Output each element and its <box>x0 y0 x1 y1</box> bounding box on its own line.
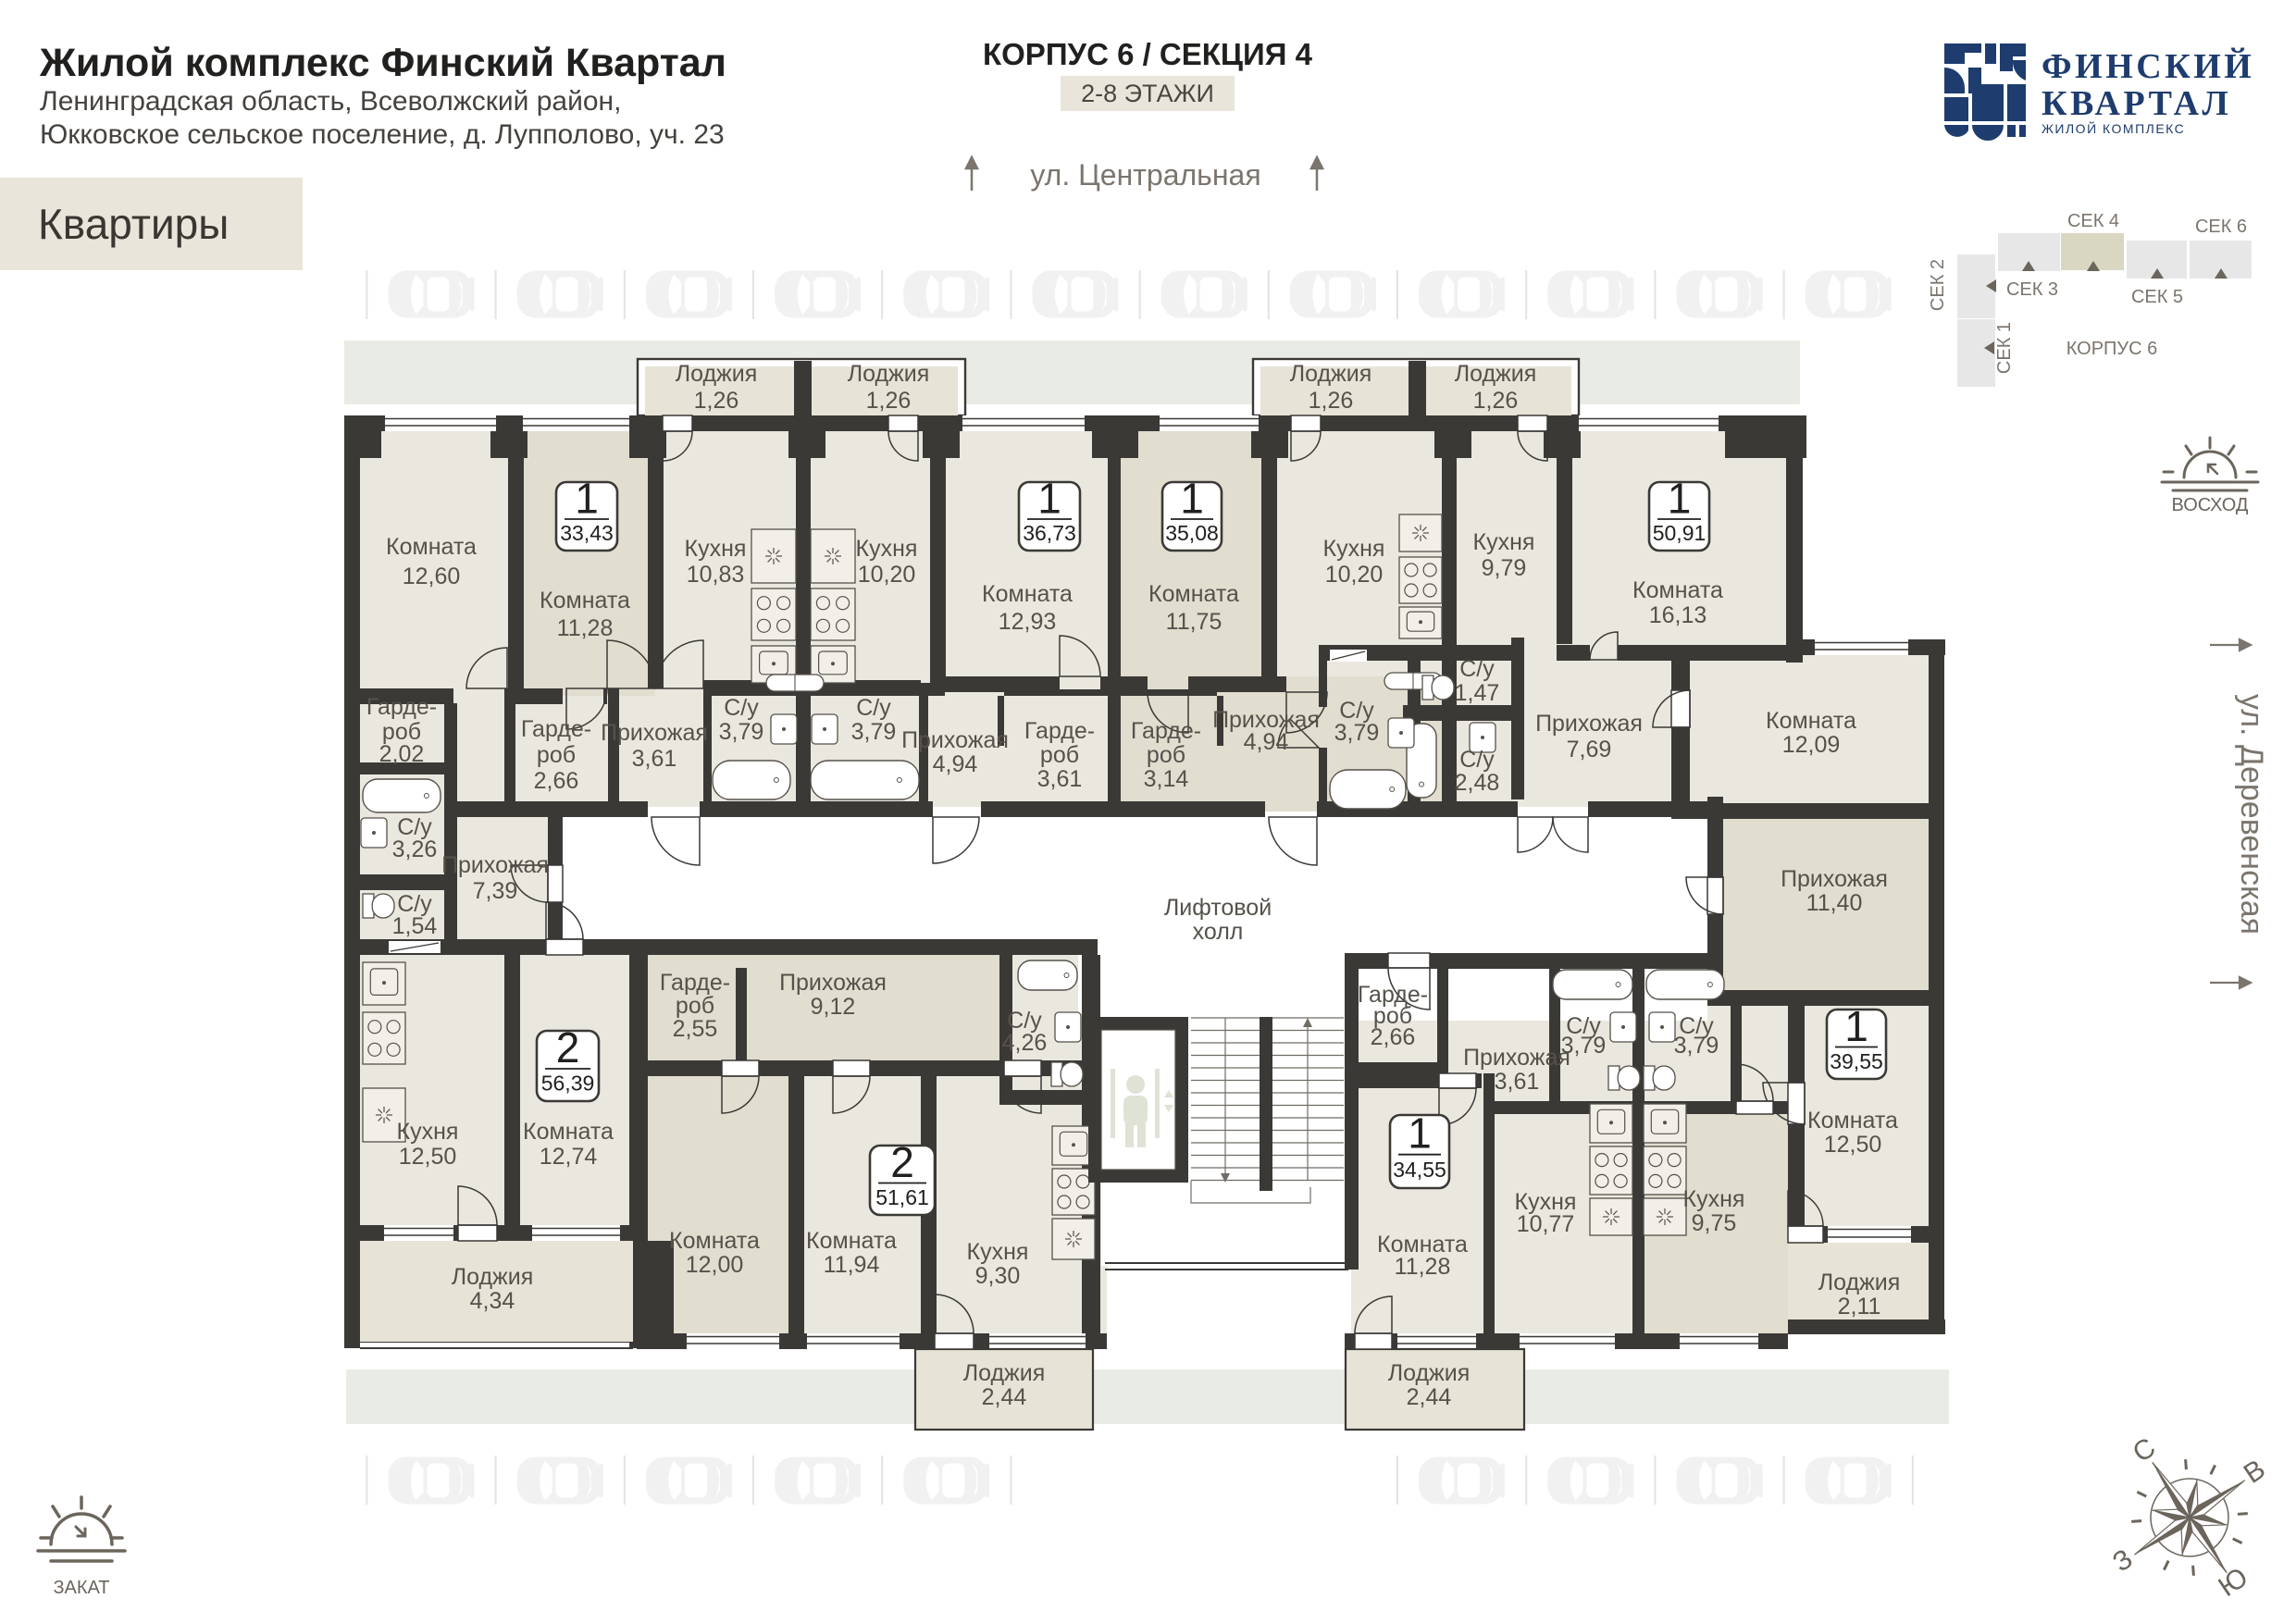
svg-text:35,08: 35,08 <box>1165 521 1219 545</box>
svg-text:16,13: 16,13 <box>1649 602 1707 628</box>
svg-text:Кухня: Кухня <box>1323 536 1385 562</box>
svg-text:11,40: 11,40 <box>1806 890 1863 916</box>
svg-text:12,50: 12,50 <box>399 1144 457 1170</box>
svg-text:роб: роб <box>537 742 576 768</box>
svg-text:Прихожая: Прихожая <box>441 852 549 878</box>
svg-text:Кухня: Кухня <box>856 536 918 562</box>
svg-text:1,54: 1,54 <box>392 913 438 939</box>
svg-text:50,91: 50,91 <box>1653 521 1706 545</box>
svg-text:1: 1 <box>575 474 599 522</box>
svg-text:3,79: 3,79 <box>1674 1033 1719 1059</box>
svg-text:7,39: 7,39 <box>473 878 518 904</box>
svg-text:Комната: Комната <box>669 1228 760 1254</box>
svg-text:9,75: 9,75 <box>1692 1210 1737 1236</box>
svg-text:ЖИЛОЙ КОМПЛЕКС: ЖИЛОЙ КОМПЛЕКС <box>2042 120 2185 136</box>
svg-text:3,79: 3,79 <box>719 719 764 745</box>
svg-text:С/у: С/у <box>724 695 759 721</box>
svg-text:11,28: 11,28 <box>557 615 614 641</box>
svg-text:Лифтовой: Лифтовой <box>1164 895 1272 921</box>
svg-text:Кухня: Кухня <box>397 1119 459 1145</box>
svg-text:2,55: 2,55 <box>673 1016 718 1042</box>
svg-text:ВОСХОД: ВОСХОД <box>2172 495 2249 515</box>
svg-text:12,93: 12,93 <box>999 609 1057 635</box>
svg-text:СЕК 5: СЕК 5 <box>2131 287 2183 307</box>
svg-text:2,48: 2,48 <box>1455 770 1500 796</box>
svg-text:12,00: 12,00 <box>686 1252 744 1278</box>
svg-text:2,11: 2,11 <box>1838 1294 1881 1319</box>
svg-text:10,20: 10,20 <box>858 562 916 588</box>
svg-text:Кухня: Кухня <box>1683 1186 1745 1212</box>
svg-text:Лоджия: Лоджия <box>1818 1270 1901 1295</box>
svg-text:9,30: 9,30 <box>975 1263 1021 1289</box>
svg-text:Лоджия: Лоджия <box>963 1360 1046 1386</box>
svg-text:Комната: Комната <box>540 588 630 613</box>
svg-text:Кухня: Кухня <box>1473 529 1535 555</box>
svg-text:Прихожая: Прихожая <box>601 720 708 746</box>
svg-text:СЕК 6: СЕК 6 <box>2195 217 2247 237</box>
svg-text:39,55: 39,55 <box>1830 1049 1883 1073</box>
svg-text:СЕК 2: СЕК 2 <box>1928 259 1948 311</box>
svg-text:51,61: 51,61 <box>875 1185 929 1209</box>
svg-text:Гарде-: Гарде- <box>1131 718 1201 744</box>
svg-text:Прихожая: Прихожая <box>1463 1045 1570 1071</box>
svg-text:2: 2 <box>890 1138 914 1186</box>
svg-text:1,26: 1,26 <box>694 388 739 414</box>
svg-text:10,77: 10,77 <box>1517 1211 1575 1237</box>
svg-text:Прихожая: Прихожая <box>1535 711 1643 737</box>
svg-text:2,66: 2,66 <box>1371 1024 1416 1050</box>
svg-text:ЗАКАТ: ЗАКАТ <box>53 1578 109 1598</box>
svg-text:3,61: 3,61 <box>1037 766 1083 792</box>
svg-text:11,75: 11,75 <box>1166 609 1222 635</box>
svg-text:9,12: 9,12 <box>811 994 856 1020</box>
svg-text:56,39: 56,39 <box>541 1072 595 1096</box>
svg-text:Гарде-: Гарде- <box>660 970 730 996</box>
svg-text:2,02: 2,02 <box>379 741 425 767</box>
svg-text:1,47: 1,47 <box>1455 680 1500 706</box>
svg-text:СЕК 3: СЕК 3 <box>2006 279 2058 300</box>
svg-text:1: 1 <box>1180 474 1204 522</box>
svg-text:Гарде-: Гарде- <box>1024 718 1095 744</box>
svg-text:12,09: 12,09 <box>1782 732 1841 758</box>
svg-text:Комната: Комната <box>1766 708 1856 734</box>
svg-text:4,94: 4,94 <box>1244 729 1289 755</box>
svg-text:4,94: 4,94 <box>933 751 978 777</box>
svg-text:12,74: 12,74 <box>540 1144 598 1170</box>
svg-text:Квартиры: Квартиры <box>38 200 229 248</box>
svg-text:С/у: С/у <box>856 695 891 721</box>
svg-text:Жилой комплекс Финский Квартал: Жилой комплекс Финский Квартал <box>39 41 726 85</box>
svg-text:2: 2 <box>556 1023 580 1072</box>
svg-text:1: 1 <box>1668 474 1692 522</box>
svg-text:36,73: 36,73 <box>1023 521 1076 545</box>
svg-text:СЕК 4: СЕК 4 <box>2067 211 2119 231</box>
svg-text:Лоджия: Лоджия <box>1388 1360 1471 1386</box>
svg-text:Комната: Комната <box>523 1119 614 1145</box>
svg-text:2-8 ЭТАЖИ: 2-8 ЭТАЖИ <box>1081 80 1214 107</box>
svg-text:1: 1 <box>1844 1002 1868 1050</box>
svg-text:Прихожая: Прихожая <box>1781 866 1888 892</box>
svg-text:Лоджия: Лоджия <box>1455 361 1537 387</box>
svg-text:3,26: 3,26 <box>392 836 438 862</box>
svg-text:Юкковское сельское поселение,: Юкковское сельское поселение, д. Лупполо… <box>40 119 725 150</box>
svg-text:1,26: 1,26 <box>1309 388 1354 414</box>
svg-text:2,66: 2,66 <box>534 768 579 794</box>
svg-text:4,26: 4,26 <box>1002 1030 1048 1056</box>
svg-text:10,83: 10,83 <box>687 562 745 588</box>
svg-text:роб: роб <box>1147 742 1185 768</box>
svg-text:11,94: 11,94 <box>824 1252 880 1278</box>
svg-text:Ленинградская область, Всеволж: Ленинградская область, Всеволжский район… <box>40 86 621 117</box>
svg-text:Комната: Комната <box>386 534 477 560</box>
svg-text:1,26: 1,26 <box>1473 388 1519 414</box>
svg-text:Гарде-: Гарде- <box>521 716 591 742</box>
svg-text:Комната: Комната <box>1632 577 1723 603</box>
svg-text:3,79: 3,79 <box>851 719 897 745</box>
svg-text:роб: роб <box>676 993 714 1019</box>
svg-text:3,61: 3,61 <box>632 746 677 772</box>
svg-text:1: 1 <box>1408 1109 1432 1158</box>
svg-text:1: 1 <box>1037 474 1061 522</box>
svg-text:Комната: Комната <box>806 1228 897 1254</box>
svg-text:холл: холл <box>1193 919 1244 945</box>
svg-text:Прихожая: Прихожая <box>779 970 887 996</box>
svg-text:9,79: 9,79 <box>1482 555 1527 581</box>
svg-text:ул. Деревенская: ул. Деревенская <box>2234 694 2269 935</box>
svg-text:КОРПУС 6: КОРПУС 6 <box>2066 339 2158 359</box>
svg-text:Лоджия: Лоджия <box>848 361 930 387</box>
svg-text:Лоджия: Лоджия <box>452 1264 534 1290</box>
svg-text:2,44: 2,44 <box>1407 1384 1452 1410</box>
svg-text:ФИНСКИЙ: ФИНСКИЙ <box>2042 47 2254 86</box>
svg-text:С/у: С/у <box>1459 656 1495 682</box>
svg-text:Гарде-: Гарде- <box>366 694 437 720</box>
svg-text:3,79: 3,79 <box>1561 1033 1607 1059</box>
svg-text:Комната: Комната <box>1148 581 1239 607</box>
svg-text:3,79: 3,79 <box>1334 720 1380 746</box>
svg-text:КОРПУС 6 / СЕКЦИЯ 4: КОРПУС 6 / СЕКЦИЯ 4 <box>983 37 1313 71</box>
svg-text:Кухня: Кухня <box>967 1239 1029 1265</box>
svg-text:Лоджия: Лоджия <box>676 361 758 387</box>
svg-text:С/у: С/у <box>1459 747 1495 773</box>
svg-text:СЕК 1: СЕК 1 <box>1994 322 2015 374</box>
svg-text:33,43: 33,43 <box>560 521 614 545</box>
svg-text:1,26: 1,26 <box>866 388 912 414</box>
svg-text:3,61: 3,61 <box>1495 1069 1540 1095</box>
svg-text:Прихожая: Прихожая <box>901 727 1009 753</box>
svg-text:ул. Центральная: ул. Центральная <box>1030 158 1260 192</box>
svg-text:3,14: 3,14 <box>1144 766 1189 792</box>
svg-text:2,44: 2,44 <box>982 1384 1027 1410</box>
svg-text:Комната: Комната <box>1807 1108 1898 1134</box>
svg-text:12,50: 12,50 <box>1824 1132 1882 1158</box>
svg-text:11,28: 11,28 <box>1395 1254 1451 1280</box>
svg-text:4,34: 4,34 <box>470 1288 515 1314</box>
svg-text:Лоджия: Лоджия <box>1290 361 1372 387</box>
svg-text:12,60: 12,60 <box>403 564 461 589</box>
svg-text:КВАРТАЛ: КВАРТАЛ <box>2042 84 2231 123</box>
svg-text:10,20: 10,20 <box>1325 562 1384 588</box>
svg-text:34,55: 34,55 <box>1393 1158 1446 1182</box>
svg-text:Комната: Комната <box>982 581 1073 607</box>
svg-text:7,69: 7,69 <box>1567 737 1612 762</box>
svg-text:роб: роб <box>1040 742 1079 768</box>
svg-text:Кухня: Кухня <box>685 536 747 562</box>
